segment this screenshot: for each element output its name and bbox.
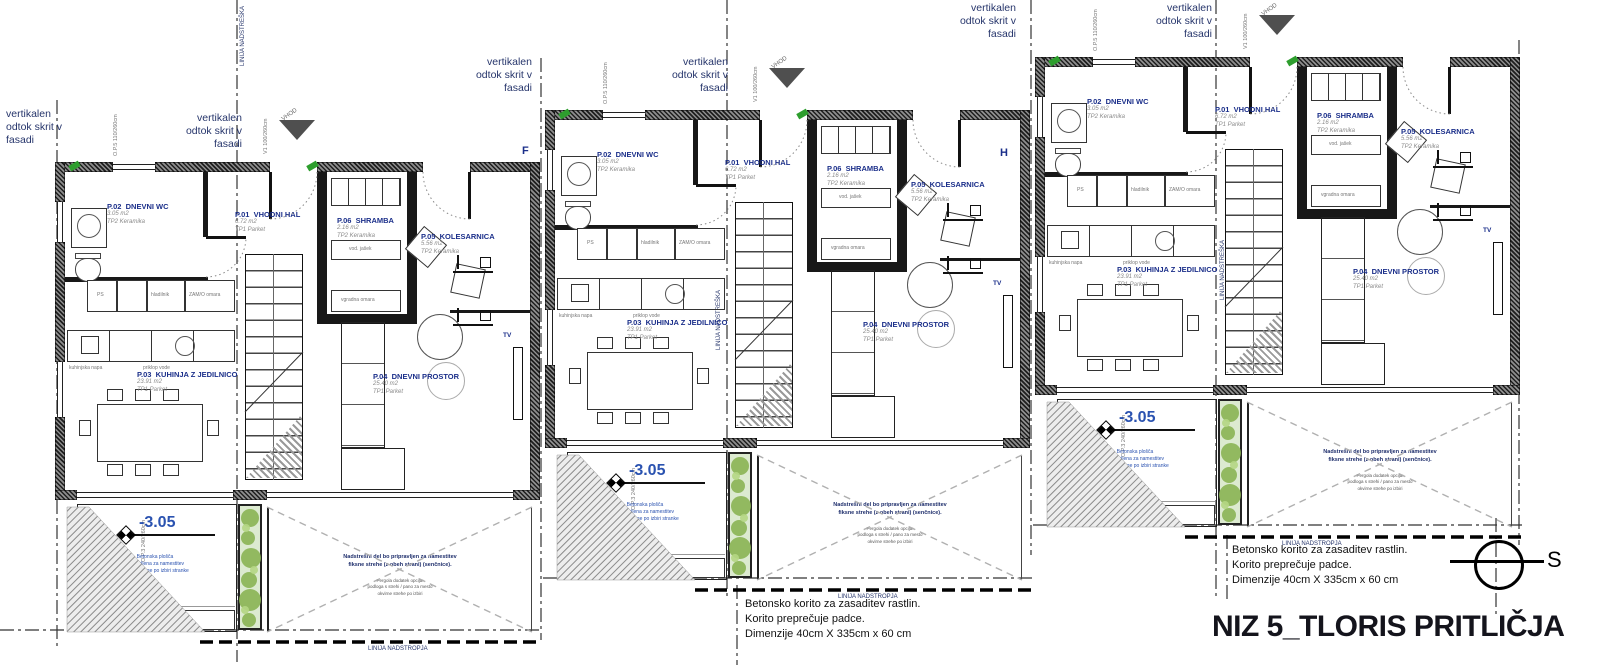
terrace-glass-door xyxy=(757,440,1003,446)
room-label-hall: P.01 VHODNI HAL 6.72 m2 TP1 Parket xyxy=(1215,105,1280,130)
wall xyxy=(1003,438,1030,448)
drain-note: vertikalen odtok skrit v fasadi xyxy=(6,108,62,147)
room-area: 3.05 m2 xyxy=(107,211,169,219)
canopy-line-label: LINIJA NADSTREŠKA xyxy=(240,6,246,66)
room-name: DNEVNI PROSTOR xyxy=(392,372,459,381)
door-leaf xyxy=(1186,131,1226,134)
room-name: VHODNI HAL xyxy=(1234,105,1281,114)
storage-shelf xyxy=(331,178,401,206)
appliance-box xyxy=(1097,175,1127,207)
entrance-arrow-icon xyxy=(769,68,805,88)
room-finish: TP2 Keramika xyxy=(337,233,394,241)
room-label-storage: P.06 SHRAMBA 2.16 m2 TP2 Keramika xyxy=(827,164,884,189)
entrance-arrow-icon xyxy=(279,120,315,140)
dining-table xyxy=(1077,299,1183,357)
tv-label: TV xyxy=(1483,227,1491,234)
room-name: VHODNI HAL xyxy=(744,158,791,167)
wall xyxy=(513,490,540,500)
room-name: DNEVNI WC xyxy=(126,202,169,211)
room-area: 2.16 m2 xyxy=(1317,120,1374,128)
sofa-chaise xyxy=(341,448,405,490)
chair xyxy=(135,464,151,476)
pergola-subnote: Pergola dodatek opcija: podloga s strehi… xyxy=(795,526,985,545)
room-finish: TP1 Parket xyxy=(863,337,949,345)
terrace-glass-door xyxy=(267,492,513,498)
kitchen-sink xyxy=(175,336,195,356)
room-name: VHODNI HAL xyxy=(254,210,301,219)
wall xyxy=(1035,57,1045,97)
room-finish: TP2 Keramika xyxy=(597,167,659,175)
wall xyxy=(807,110,913,120)
entry-door-tag: V1 100/260cm xyxy=(263,119,269,154)
staircase-stringer xyxy=(763,202,764,428)
wall xyxy=(155,162,270,172)
wall xyxy=(723,438,757,448)
bicycle-rack xyxy=(943,205,983,221)
drain-note: vertikalen odtok skrit v fasadi xyxy=(168,112,242,151)
hood-label: kuhinjska napa xyxy=(1049,260,1082,266)
room-name: KUHINJA Z JEDILNICO xyxy=(646,318,728,327)
tv-label: TV xyxy=(993,280,1001,287)
room-code: P.02 xyxy=(107,202,121,211)
storage-shelf xyxy=(1311,73,1381,101)
room-finish: TP1 Parket xyxy=(373,389,459,397)
utility-shaft-label: vod. jašek xyxy=(349,246,372,252)
room-area: 3.05 m2 xyxy=(1087,106,1149,114)
room-label-living: P.04 DNEVNI PROSTOR 25.40 m2 TP1 Parket xyxy=(863,320,949,345)
room-label-hall: P.01 VHODNI HAL 6.72 m2 TP1 Parket xyxy=(725,158,790,183)
appliance-box xyxy=(607,228,637,260)
pergola-subnote: Pergola dodatek opcija: podloga s strehi… xyxy=(1285,473,1475,492)
house-unit: vod. jašek vgradna omara PS hladilnik ZA… xyxy=(1035,57,1520,562)
chair xyxy=(79,420,91,436)
terrace-note: Betonska plošča pripravljena za namestit… xyxy=(1075,449,1195,470)
terrace-note: Betonska plošča pripravljena za namestit… xyxy=(95,554,215,575)
wall xyxy=(545,365,555,448)
room-area: 5.56 m2 xyxy=(1401,136,1475,144)
grid-letter-f: F xyxy=(522,145,529,157)
room-label-storage: P.06 SHRAMBA 2.16 m2 TP2 Keramika xyxy=(337,216,394,241)
room-area: 2.16 m2 xyxy=(827,173,884,181)
terrace-glass-door xyxy=(1057,387,1213,393)
elevation-line xyxy=(615,482,705,484)
hood-label: kuhinjska napa xyxy=(559,313,592,319)
room-area: 23.91 m2 xyxy=(1117,274,1217,282)
wall xyxy=(1213,385,1247,395)
fridge-label: hladilnik xyxy=(151,292,169,298)
room-name: KOLESARNICA xyxy=(440,232,495,241)
room-finish: TP2 Keramika xyxy=(911,197,985,205)
room-area: 5.56 m2 xyxy=(421,241,495,249)
drain-note: vertikalen odtok skrit v fasadi xyxy=(936,2,1016,41)
door-leaf xyxy=(696,184,736,187)
terrace-note: Betonska plošča pripravljena za namestit… xyxy=(585,502,705,523)
utility-shaft-label: vod. jašek xyxy=(839,194,862,200)
room-code: P.04 xyxy=(373,372,387,381)
entry-door-tag: V1 100/260cm xyxy=(1243,14,1249,49)
room-finish: TP2 Keramika xyxy=(1087,114,1149,122)
appliance-box xyxy=(117,280,147,312)
tv xyxy=(1493,242,1503,315)
washer-label: PS xyxy=(587,240,594,246)
room-code: P.06 xyxy=(337,216,351,225)
room-area: 3.05 m2 xyxy=(597,159,659,167)
room-code: P.02 xyxy=(1087,97,1101,106)
terrace-step xyxy=(663,558,725,578)
stove xyxy=(81,336,99,354)
window xyxy=(113,164,155,170)
room-name: KOLESARNICA xyxy=(930,180,985,189)
room-area: 23.91 m2 xyxy=(137,379,237,387)
room-code: P.03 xyxy=(1117,265,1131,274)
room-finish: TP1 Parket xyxy=(235,227,300,235)
room-finish: TP1 Parket xyxy=(1117,282,1217,290)
wall xyxy=(1035,137,1045,257)
drain-note: vertikalen odtok skrit v fasadi xyxy=(458,56,532,95)
room-finish: TP1 Parket xyxy=(627,335,727,343)
room-code: P.05 xyxy=(421,232,435,241)
room-label-kitchen: P.03 KUHINJA Z JEDILNICO 23.91 m2 TP1 Pa… xyxy=(1117,265,1217,290)
wall xyxy=(807,120,817,272)
room-name: DNEVNI PROSTOR xyxy=(1372,267,1439,276)
room-code: P.04 xyxy=(1353,267,1367,276)
room-label-living: P.04 DNEVNI PROSTOR 25.40 m2 TP1 Parket xyxy=(1353,267,1439,292)
planter-box xyxy=(728,452,752,578)
room-label-bike: P.05 KOLESARNICA 5.56 m2 TP2 Keramika xyxy=(421,232,495,257)
planter-box xyxy=(238,504,262,630)
wall xyxy=(317,172,327,324)
cabinet-label: ZAM/O omara xyxy=(1169,187,1200,193)
wc-sink xyxy=(567,162,591,186)
bicycle-rack xyxy=(1433,205,1473,221)
staircase-stringer xyxy=(1253,149,1254,375)
window-tag: O.P.5 110/260cm xyxy=(1093,9,1099,51)
door-leaf xyxy=(206,236,246,239)
chair xyxy=(1187,315,1199,331)
cabinet-label: ZAM/O omara xyxy=(189,292,220,298)
room-code: P.02 xyxy=(597,150,611,159)
window-tag: O.P.5 110/260cm xyxy=(603,62,609,104)
north-label: S xyxy=(1547,547,1562,573)
wall xyxy=(645,110,760,120)
elevation-line xyxy=(1105,429,1195,431)
wall xyxy=(1297,67,1307,219)
room-finish: TP1 Parket xyxy=(725,175,790,183)
wall xyxy=(317,162,423,172)
room-area: 5.56 m2 xyxy=(911,189,985,197)
room-name: DNEVNI WC xyxy=(616,150,659,159)
bicycle-rack xyxy=(453,310,493,326)
section-label: G,g xyxy=(1101,505,1120,519)
room-name: DNEVNI PROSTOR xyxy=(882,320,949,329)
room-finish: TP2 Keramika xyxy=(827,181,884,189)
terrace-step xyxy=(173,610,235,630)
room-area: 25.40 m2 xyxy=(863,329,949,337)
cabinet-label: ZAM/O omara xyxy=(679,240,710,246)
chair xyxy=(1087,359,1103,371)
wall xyxy=(545,110,555,150)
room-code: P.06 xyxy=(1317,111,1331,120)
house-unit: vod. jašek vgradna omara PS hladilnik ZA… xyxy=(545,110,1030,615)
window xyxy=(547,310,553,365)
room-label-bike: P.05 KOLESARNICA 5.56 m2 TP2 Keramika xyxy=(911,180,985,205)
wall xyxy=(1183,67,1188,132)
stove xyxy=(1061,231,1079,249)
bicycle-rack xyxy=(453,257,493,273)
wall xyxy=(203,172,208,237)
section-label: D,d xyxy=(611,558,630,572)
toilet xyxy=(565,206,591,230)
room-finish: TP1 Parket xyxy=(137,387,237,395)
room-code: P.01 xyxy=(725,158,739,167)
chair xyxy=(569,368,581,384)
wall xyxy=(1297,57,1403,67)
pergola-subnote: Pergola dodatek opcija: podloga s strehi… xyxy=(305,578,495,597)
wall xyxy=(55,162,65,202)
room-finish: TP2 Keramika xyxy=(107,219,169,227)
room-label-kitchen: P.03 KUHINJA Z JEDILNICO 23.91 m2 TP1 Pa… xyxy=(137,370,237,395)
chair xyxy=(597,337,613,349)
room-label-storage: P.06 SHRAMBA 2.16 m2 TP2 Keramika xyxy=(1317,111,1374,136)
pergola-area xyxy=(757,455,1022,580)
wall xyxy=(1510,57,1520,395)
terrace-line xyxy=(569,554,725,555)
room-name: SHRAMBA xyxy=(1336,111,1374,120)
pergola-note: Nadstrešni del bo pripravljen za namesti… xyxy=(1265,449,1495,464)
kitchen-sink xyxy=(665,284,685,304)
dining-table xyxy=(97,404,203,462)
utility-shaft-label: vod. jašek xyxy=(1329,141,1352,147)
chair xyxy=(597,412,613,424)
chair xyxy=(1059,315,1071,331)
window xyxy=(1037,97,1043,137)
wall xyxy=(1135,57,1250,67)
room-name: KUHINJA Z JEDILNICO xyxy=(1136,265,1218,274)
tv-label: TV xyxy=(503,332,511,339)
room-label-bike: P.05 KOLESARNICA 5.56 m2 TP2 Keramika xyxy=(1401,127,1475,152)
kitchen-sink xyxy=(1155,231,1175,251)
room-name: SHRAMBA xyxy=(846,164,884,173)
room-code: P.01 xyxy=(1215,105,1229,114)
wardrobe-label: vgradna omara xyxy=(831,245,865,251)
terrace-glass-door xyxy=(77,492,233,498)
chair xyxy=(697,368,709,384)
pergola-note: Nadstrešni del bo pripravljen za namesti… xyxy=(285,554,515,569)
fridge-label: hladilnik xyxy=(1131,187,1149,193)
pergola-area xyxy=(1247,402,1512,527)
tv xyxy=(513,347,523,420)
window xyxy=(57,202,63,242)
room-area: 6.72 m2 xyxy=(725,167,790,175)
terrace-step xyxy=(1153,505,1215,525)
window xyxy=(603,112,645,118)
chair xyxy=(107,464,123,476)
room-code: P.03 xyxy=(137,370,151,379)
storage-shelf xyxy=(821,126,891,154)
drain-note: vertikalen odtok skrit v fasadi xyxy=(1132,2,1212,41)
room-area: 23.91 m2 xyxy=(627,327,727,335)
wall xyxy=(1020,110,1030,448)
floor-plan: vertikalen odtok skrit v fasadi vertikal… xyxy=(0,0,1600,669)
room-label-kitchen: P.03 KUHINJA Z JEDILNICO 23.91 m2 TP1 Pa… xyxy=(627,318,727,343)
wall xyxy=(233,490,267,500)
washer-label: PS xyxy=(97,292,104,298)
tv xyxy=(1003,295,1013,368)
wall xyxy=(55,417,65,500)
room-label-wc: P.02 DNEVNI WC 3.05 m2 TP2 Keramika xyxy=(107,202,169,227)
drawing-title: NIZ 5_TLORIS PRITLIČJA xyxy=(1212,610,1564,644)
room-finish: TP2 Keramika xyxy=(1401,144,1475,152)
toilet xyxy=(1055,153,1081,177)
window-tag: O.P.5 110/260cm xyxy=(113,114,119,156)
room-code: P.04 xyxy=(863,320,877,329)
room-finish: TP1 Parket xyxy=(1215,122,1280,130)
hood-label: kuhinjska napa xyxy=(69,365,102,371)
wall xyxy=(55,242,65,362)
chair xyxy=(1087,284,1103,296)
terrace-glass-door xyxy=(567,440,723,446)
room-label-wc: P.02 DNEVNI WC 3.05 m2 TP2 Keramika xyxy=(597,150,659,175)
wardrobe-label: vgradna omara xyxy=(341,297,375,303)
wc-sink xyxy=(77,214,101,238)
chair xyxy=(653,412,669,424)
room-finish: TP2 Keramika xyxy=(1317,128,1374,136)
chair xyxy=(107,389,123,401)
chair xyxy=(207,420,219,436)
toilet xyxy=(75,258,101,282)
sofa-chaise xyxy=(1321,343,1385,385)
window xyxy=(1037,257,1043,312)
sofa-chaise xyxy=(831,396,895,438)
wall xyxy=(530,162,540,500)
washer-label: PS xyxy=(1077,187,1084,193)
room-name: KUHINJA Z JEDILNICO xyxy=(156,370,238,379)
chair xyxy=(1143,359,1159,371)
room-area: 25.40 m2 xyxy=(373,381,459,389)
chair xyxy=(163,464,179,476)
elevation-value: -3.05 xyxy=(139,514,175,532)
room-area: 2.16 m2 xyxy=(337,225,394,233)
room-code: P.06 xyxy=(827,164,841,173)
wall xyxy=(545,438,567,448)
door-leaf xyxy=(1448,67,1451,114)
bicycle-rack xyxy=(943,258,983,274)
room-finish: TP2 Keramika xyxy=(421,249,495,257)
wall xyxy=(1035,385,1057,395)
room-code: P.03 xyxy=(627,318,641,327)
elevation-value: -3.05 xyxy=(1119,409,1155,427)
door-leaf xyxy=(468,172,471,219)
entrance-arrow-icon xyxy=(1259,15,1295,35)
terrace-line xyxy=(79,606,235,607)
room-name: DNEVNI WC xyxy=(1106,97,1149,106)
bicycle-rack xyxy=(1433,152,1473,168)
room-label-wc: P.02 DNEVNI WC 3.05 m2 TP2 Keramika xyxy=(1087,97,1149,122)
planter-box xyxy=(1218,399,1242,525)
wall xyxy=(55,490,77,500)
window xyxy=(1093,59,1135,65)
room-finish: TP1 Parket xyxy=(1353,284,1439,292)
wall xyxy=(545,190,555,310)
elevation-value: -3.05 xyxy=(629,462,665,480)
wall xyxy=(1035,312,1045,395)
room-area: 6.72 m2 xyxy=(1215,114,1280,122)
room-label-living: P.04 DNEVNI PROSTOR 25.40 m2 TP1 Parket xyxy=(373,372,459,397)
room-name: KOLESARNICA xyxy=(1420,127,1475,136)
drain-note: vertikalen odtok skrit v fasadi xyxy=(648,56,728,95)
house-unit: vod. jašek vgradna omara PS hladilnik ZA… xyxy=(55,162,540,667)
dining-table xyxy=(587,352,693,410)
wall xyxy=(1493,385,1520,395)
pergola-note: Nadstrešni del bo pripravljen za namesti… xyxy=(775,502,1005,517)
window xyxy=(547,150,553,190)
wall xyxy=(693,120,698,185)
fridge-label: hladilnik xyxy=(641,240,659,246)
elevation-line xyxy=(125,534,215,536)
window xyxy=(57,362,63,417)
room-code: P.05 xyxy=(911,180,925,189)
room-code: P.05 xyxy=(1401,127,1415,136)
wardrobe-label: vgradna omara xyxy=(1321,192,1355,198)
room-label-hall: P.01 VHODNI HAL 6.72 m2 TP1 Parket xyxy=(235,210,300,235)
room-area: 25.40 m2 xyxy=(1353,276,1439,284)
entry-door-tag: V1 100/260cm xyxy=(753,67,759,102)
room-area: 6.72 m2 xyxy=(235,219,300,227)
door-leaf xyxy=(958,120,961,167)
room-code: P.01 xyxy=(235,210,249,219)
room-name: SHRAMBA xyxy=(356,216,394,225)
stove xyxy=(571,284,589,302)
pergola-area xyxy=(267,507,532,632)
wc-sink xyxy=(1057,109,1081,133)
staircase-stringer xyxy=(273,254,274,480)
chair xyxy=(625,412,641,424)
terrace-line xyxy=(1059,501,1215,502)
chair xyxy=(1115,359,1131,371)
terrace-glass-door xyxy=(1247,387,1493,393)
